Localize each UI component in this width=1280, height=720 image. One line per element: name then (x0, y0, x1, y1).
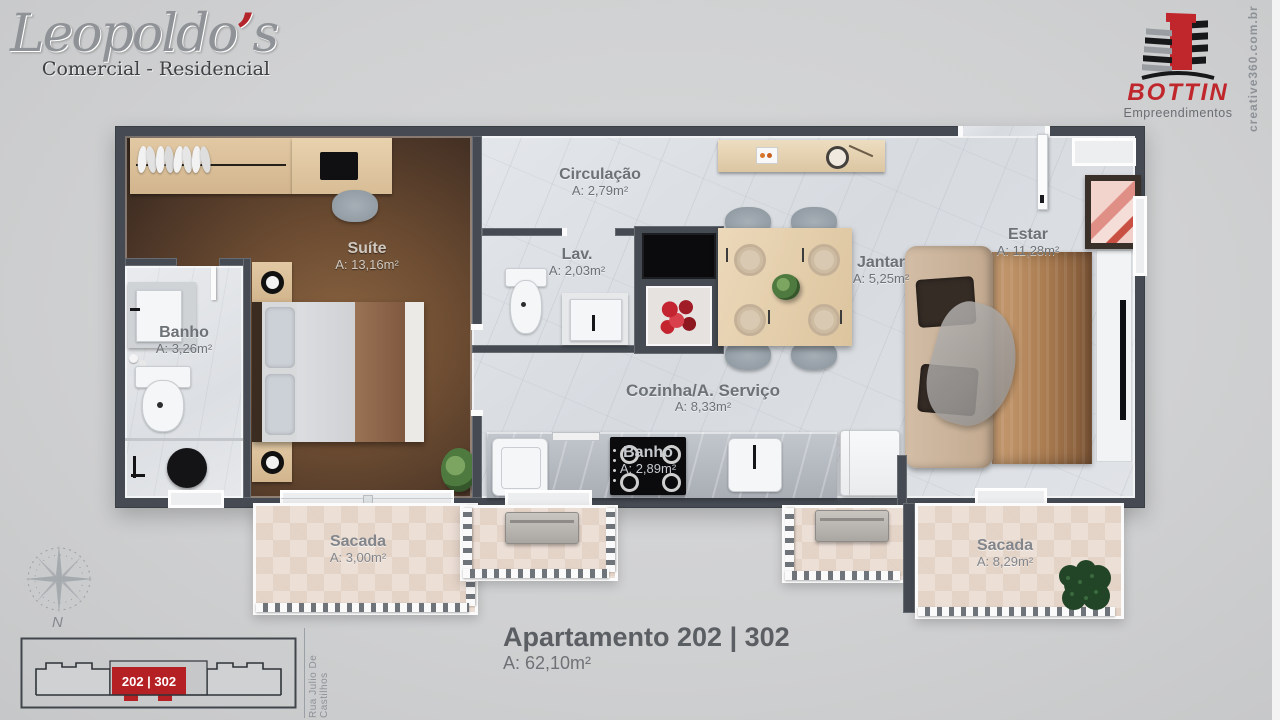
logo-name-post: s (253, 4, 278, 64)
building-keyplan: 202 | 302 (20, 637, 297, 709)
tv-icon (1120, 300, 1126, 420)
room-label-circulacao: CirculaçãoA: 2,79m² (530, 166, 670, 198)
railing (256, 603, 469, 612)
wall (125, 258, 177, 266)
plate-icon (734, 244, 766, 276)
window (1072, 138, 1136, 166)
keyplan-unit-label: 202 | 302 (122, 674, 176, 689)
cutlery-icon (840, 310, 842, 324)
door-leaf (211, 266, 216, 300)
room-label-sacada-suite: SacadaA: 3,00m² (288, 533, 428, 565)
window (168, 490, 224, 508)
compass-north-label: N (52, 614, 63, 631)
shower-divider (125, 438, 243, 441)
pillow (265, 374, 295, 435)
balcony-plant-icon (1052, 552, 1118, 618)
dining-table (718, 228, 852, 346)
plate-icon (734, 304, 766, 336)
bed (252, 302, 424, 442)
tv-panel (1096, 250, 1132, 462)
wall (897, 455, 907, 508)
room-label-jantar: JantarA: 5,25m² (811, 254, 951, 286)
refrigerator (840, 430, 900, 496)
entry-opening (963, 126, 1045, 136)
floorplan-poster: Leopoldo’s Comercial - Residencial BOTTI… (0, 0, 1280, 720)
decor-clock (826, 146, 849, 169)
faucet-icon (592, 315, 595, 331)
apartment-floorplan: CirculaçãoA: 2,79m² SuíteA: 13,16m² Banh… (115, 126, 1145, 508)
logo-apostrophe: ’ (236, 3, 252, 64)
cutlery-icon (768, 310, 770, 324)
lamp-icon (261, 451, 284, 474)
bottin-building-icon (1140, 12, 1216, 82)
room-label-banho-social: BanhoA: 2,89m² (593, 444, 703, 476)
street-divider (304, 628, 305, 718)
plate-icon (808, 304, 840, 336)
wall (482, 228, 567, 236)
kitchen-sink (728, 438, 782, 492)
leopoldos-logo: Leopoldo’s Comercial - Residencial (10, 6, 270, 80)
logo-name-pre: Leopoldo (10, 4, 236, 64)
apartment-total-area: A: 62,10m² (503, 652, 790, 674)
ac-condenser (815, 510, 889, 542)
flower-niche (646, 286, 712, 346)
flower-decor (656, 294, 702, 338)
drying-rack (552, 432, 600, 441)
window (1133, 196, 1147, 276)
leopoldos-logo-name: Leopoldo’s (10, 6, 270, 62)
laptop (320, 152, 358, 180)
bottin-tagline: Empreendimentos (1108, 106, 1248, 120)
cutlery-icon (726, 248, 728, 262)
compass-rose: N (22, 543, 96, 631)
hanging-clothes (138, 146, 288, 178)
cutlery-icon (802, 248, 804, 262)
nightstand-top (252, 262, 292, 302)
entry-door-leaf (1037, 134, 1048, 210)
apartment-title: Apartamento 202 | 302 (503, 623, 790, 652)
door-jamb (562, 228, 567, 236)
ac-condenser (505, 512, 579, 544)
door-jamb (471, 324, 483, 330)
faucet-icon (753, 445, 756, 469)
title-block: Apartamento 202 | 302 A: 62,10m² (503, 623, 790, 674)
door-jamb (471, 410, 483, 416)
sideboard (718, 140, 885, 172)
lamp-icon (261, 271, 284, 294)
leopoldos-tagline: Comercial - Residencial (10, 58, 270, 80)
laundry-sink (492, 438, 548, 496)
wall (472, 136, 482, 330)
decor-frame (756, 147, 778, 164)
closet (642, 233, 716, 279)
bed-throw (355, 302, 405, 442)
wall (472, 345, 642, 353)
centerpiece-plant-icon (772, 274, 800, 300)
shower-drain (167, 448, 207, 488)
bed-sheet (405, 302, 424, 442)
wall (903, 503, 915, 613)
desk-chair (332, 190, 378, 222)
faucet-icon (130, 308, 140, 311)
page-edge-strip (1272, 0, 1280, 720)
railing (463, 569, 609, 578)
railing (785, 508, 794, 574)
street-label: Rua Julio De Castilhos (308, 630, 330, 718)
toilet-icon (505, 268, 545, 338)
room-label-banho-suite: BanhoA: 3,26m² (125, 324, 243, 356)
toilet-icon (135, 366, 189, 432)
nightstand-bottom (252, 442, 292, 482)
wall (472, 410, 482, 498)
railing (606, 508, 615, 572)
bottin-logo-name: BOTTIN (1108, 82, 1248, 104)
room-label-lavabo: Lav.A: 2,03m² (517, 246, 637, 278)
railing (463, 508, 472, 572)
room-label-suite: SuíteA: 13,16m² (297, 240, 437, 272)
wall (243, 258, 251, 498)
room-label-cozinha: Cozinha/A. ServiçoA: 8,33m² (603, 382, 803, 414)
watermark-credit: creative360.com.br (1246, 22, 1260, 132)
lav-vanity (562, 293, 628, 345)
door-jamb (958, 126, 963, 137)
pillow (265, 307, 295, 368)
decor-twig (849, 145, 874, 157)
shower-fixture-icon (131, 474, 145, 477)
door-handle-icon (1040, 195, 1044, 203)
wardrobe (130, 138, 292, 194)
suite-desk (292, 138, 392, 194)
headboard (252, 302, 262, 442)
duvet (297, 302, 355, 442)
bottin-logo: BOTTIN Empreendimentos (1108, 12, 1248, 120)
railing (785, 571, 900, 580)
room-label-estar: EstarA: 11,28m² (958, 226, 1098, 258)
